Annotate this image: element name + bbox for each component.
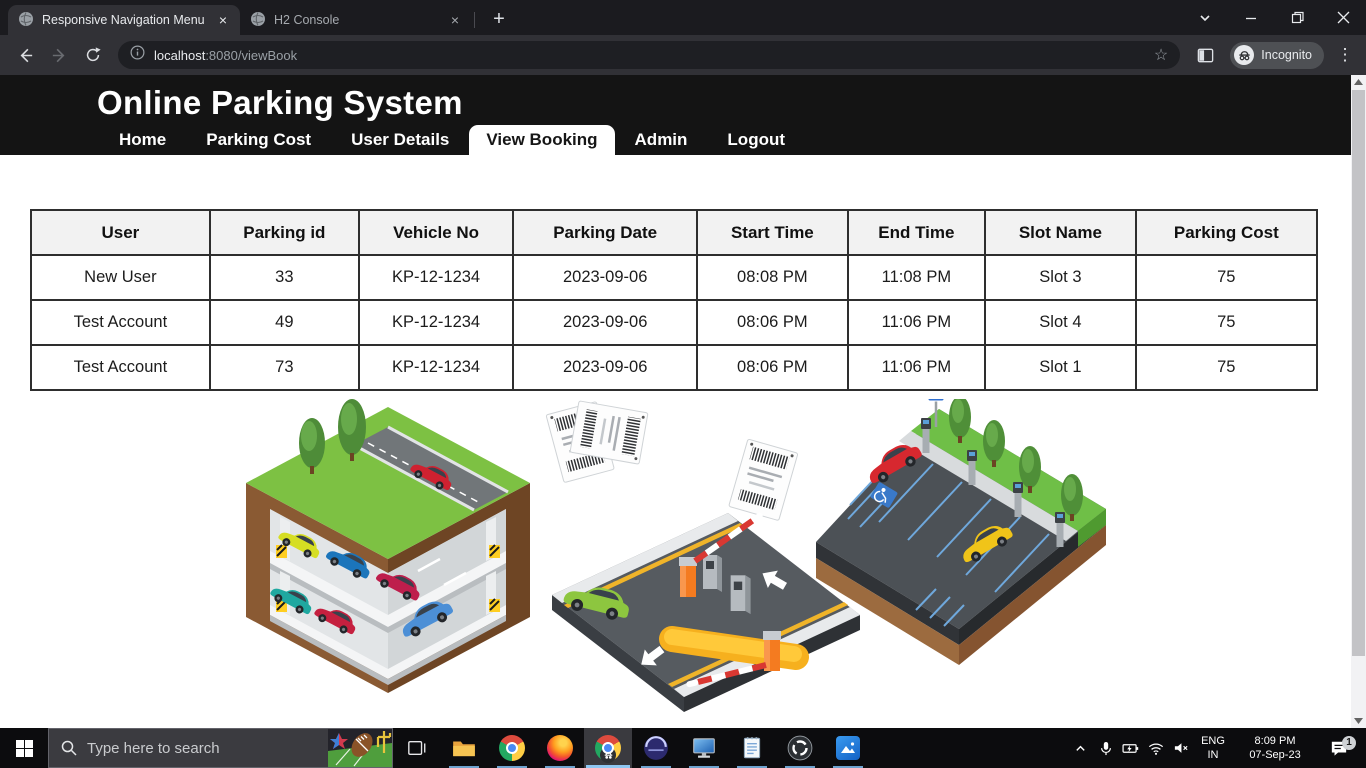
url-path: :8080/viewBook <box>205 48 297 63</box>
remote-desktop-icon <box>691 735 717 761</box>
volume-muted-icon[interactable] <box>1168 728 1193 768</box>
cell-parking-cost: 75 <box>1136 345 1317 390</box>
cell-vehicle-no: KP-12-1234 <box>359 300 513 345</box>
nav-item-user-details[interactable]: User Details <box>331 125 469 155</box>
col-header-parking-date: Parking Date <box>513 210 697 255</box>
clock-date: 07-Sep-23 <box>1233 748 1317 762</box>
clock-time: 8:09 PM <box>1233 734 1317 748</box>
nav-item-logout[interactable]: Logout <box>707 125 805 155</box>
tab-close-icon[interactable]: × <box>214 11 232 29</box>
cell-user: New User <box>31 255 210 300</box>
microphone-icon[interactable] <box>1093 728 1118 768</box>
action-center-button[interactable]: 1 <box>1317 740 1361 757</box>
windows-taskbar: Type here to search <box>0 728 1366 768</box>
back-button[interactable] <box>8 38 42 72</box>
table-row: Test Account 49 KP-12-1234 2023-09-06 08… <box>31 300 1317 345</box>
cell-parking-cost: 75 <box>1136 300 1317 345</box>
toll-gate-scene <box>552 512 860 712</box>
browser-menu-kebab-icon[interactable]: ⋮ <box>1332 45 1358 65</box>
cell-slot-name: Slot 3 <box>985 255 1135 300</box>
scrollbar-thumb[interactable] <box>1352 90 1365 656</box>
cell-parking-date: 2023-09-06 <box>513 345 697 390</box>
cell-parking-id: 49 <box>210 300 359 345</box>
page-scrollbar[interactable] <box>1351 75 1366 728</box>
table-header-row: User Parking id Vehicle No Parking Date … <box>31 210 1317 255</box>
taskbar-app-eclipse[interactable] <box>632 728 680 768</box>
cell-parking-id: 73 <box>210 345 359 390</box>
language-indicator[interactable]: ENG IN <box>1193 734 1233 763</box>
screen: Responsive Navigation Menu × H2 Console … <box>0 0 1366 768</box>
minimize-button[interactable] <box>1228 0 1274 35</box>
window-controls <box>1182 0 1366 35</box>
restore-button[interactable] <box>1274 0 1320 35</box>
wifi-icon[interactable] <box>1143 728 1168 768</box>
scroll-up-icon[interactable] <box>1351 75 1366 89</box>
photos-icon <box>836 736 860 760</box>
taskbar-app-remote-desktop[interactable] <box>680 728 728 768</box>
cell-slot-name: Slot 1 <box>985 345 1135 390</box>
site-info-icon[interactable] <box>130 45 145 65</box>
page-title: Online Parking System <box>97 84 463 122</box>
main-nav: Home Parking Cost User Details View Book… <box>99 125 805 155</box>
incognito-badge[interactable]: Incognito <box>1230 42 1324 69</box>
cell-parking-date: 2023-09-06 <box>513 300 697 345</box>
address-bar[interactable]: localhost:8080/viewBook ☆ <box>118 41 1180 69</box>
tab-responsive-navigation-menu[interactable]: Responsive Navigation Menu × <box>8 5 240 35</box>
url-host: localhost <box>154 48 205 63</box>
taskbar-app-chrome[interactable] <box>488 728 536 768</box>
col-header-slot-name: Slot Name <box>985 210 1135 255</box>
col-header-parking-id: Parking id <box>210 210 359 255</box>
hidden-icons-chevron-icon[interactable] <box>1068 728 1093 768</box>
cell-slot-name: Slot 4 <box>985 300 1135 345</box>
cell-parking-date: 2023-09-06 <box>513 255 697 300</box>
site-header: Online Parking System Home Parking Cost … <box>0 75 1351 155</box>
cell-start-time: 08:06 PM <box>697 300 847 345</box>
incognito-spy-icon <box>1234 45 1254 65</box>
garage-scene <box>246 399 530 693</box>
eclipse-icon <box>643 735 669 761</box>
taskbar-app-firefox[interactable] <box>536 728 584 768</box>
parking-tickets <box>546 401 798 521</box>
col-header-parking-cost: Parking Cost <box>1136 210 1317 255</box>
tab-favicon-globe-icon <box>18 11 34 30</box>
col-header-vehicle-no: Vehicle No <box>359 210 513 255</box>
url-text: localhost:8080/viewBook <box>154 48 297 63</box>
notification-count-badge: 1 <box>1342 736 1356 750</box>
parking-illustration: P <box>0 399 1351 719</box>
cell-start-time: 08:06 PM <box>697 345 847 390</box>
cell-end-time: 11:06 PM <box>848 300 986 345</box>
battery-icon[interactable] <box>1118 728 1143 768</box>
cell-parking-id: 33 <box>210 255 359 300</box>
new-tab-button[interactable]: + <box>485 5 513 33</box>
taskbar-app-notepad[interactable] <box>728 728 776 768</box>
close-window-button[interactable] <box>1320 0 1366 35</box>
language-code: ENG <box>1193 734 1233 748</box>
col-header-end-time: End Time <box>848 210 986 255</box>
forward-button[interactable] <box>42 38 76 72</box>
web-page: Online Parking System Home Parking Cost … <box>0 75 1351 728</box>
taskbar-app-photos[interactable] <box>824 728 872 768</box>
tab-divider <box>474 12 475 28</box>
cell-user: Test Account <box>31 300 210 345</box>
tab-favicon-globe-icon <box>250 11 266 30</box>
tab-title: Responsive Navigation Menu <box>42 13 206 27</box>
tab-strip: Responsive Navigation Menu × H2 Console … <box>0 0 1366 35</box>
cell-start-time: 08:08 PM <box>697 255 847 300</box>
taskbar-app-obs-studio[interactable] <box>776 728 824 768</box>
tab-title: H2 Console <box>274 13 438 27</box>
reload-button[interactable] <box>76 38 110 72</box>
search-box-football-art <box>328 729 392 767</box>
taskbar-app-file-explorer[interactable] <box>440 728 488 768</box>
cell-vehicle-no: KP-12-1234 <box>359 345 513 390</box>
incognito-spy-icon <box>600 747 616 763</box>
table-row: New User 33 KP-12-1234 2023-09-06 08:08 … <box>31 255 1317 300</box>
browser-toolbar: localhost:8080/viewBook ☆ Incognito ⋮ <box>0 35 1366 75</box>
chrome-incognito-icon <box>595 735 621 761</box>
bookmark-star-icon[interactable]: ☆ <box>1154 45 1168 65</box>
taskbar-search-box[interactable]: Type here to search <box>48 728 393 768</box>
nav-item-view-booking[interactable]: View Booking <box>469 125 614 155</box>
cell-parking-cost: 75 <box>1136 255 1317 300</box>
col-header-start-time: Start Time <box>697 210 847 255</box>
language-region: IN <box>1193 748 1233 762</box>
clock[interactable]: 8:09 PM 07-Sep-23 <box>1233 734 1317 763</box>
side-panel-icon[interactable] <box>1188 38 1222 72</box>
task-view-button[interactable] <box>393 728 440 768</box>
cell-end-time: 11:06 PM <box>848 345 986 390</box>
booking-table: User Parking id Vehicle No Parking Date … <box>30 209 1318 391</box>
taskbar-app-chrome-incognito[interactable] <box>584 728 632 768</box>
file-explorer-icon <box>451 735 477 761</box>
incognito-label: Incognito <box>1261 48 1312 62</box>
scroll-down-icon[interactable] <box>1351 714 1366 728</box>
obs-studio-icon <box>787 735 813 761</box>
table-row: Test Account 73 KP-12-1234 2023-09-06 08… <box>31 345 1317 390</box>
tab-search-chevron-icon[interactable] <box>1182 0 1228 35</box>
firefox-icon <box>547 735 573 761</box>
system-tray: ENG IN 8:09 PM 07-Sep-23 1 <box>1068 728 1366 768</box>
search-placeholder: Type here to search <box>87 740 220 757</box>
cell-user: Test Account <box>31 345 210 390</box>
cell-vehicle-no: KP-12-1234 <box>359 255 513 300</box>
nav-item-parking-cost[interactable]: Parking Cost <box>186 125 331 155</box>
start-button[interactable] <box>0 728 48 768</box>
tab-h2-console[interactable]: H2 Console × <box>240 5 472 35</box>
search-icon <box>61 740 77 756</box>
cell-end-time: 11:08 PM <box>848 255 986 300</box>
tab-close-icon[interactable]: × <box>446 11 464 29</box>
notepad-icon <box>739 735 765 761</box>
col-header-user: User <box>31 210 210 255</box>
nav-item-admin[interactable]: Admin <box>615 125 708 155</box>
chrome-icon <box>499 735 525 761</box>
nav-item-home[interactable]: Home <box>99 125 186 155</box>
browser-titlebar: Responsive Navigation Menu × H2 Console … <box>0 0 1366 35</box>
